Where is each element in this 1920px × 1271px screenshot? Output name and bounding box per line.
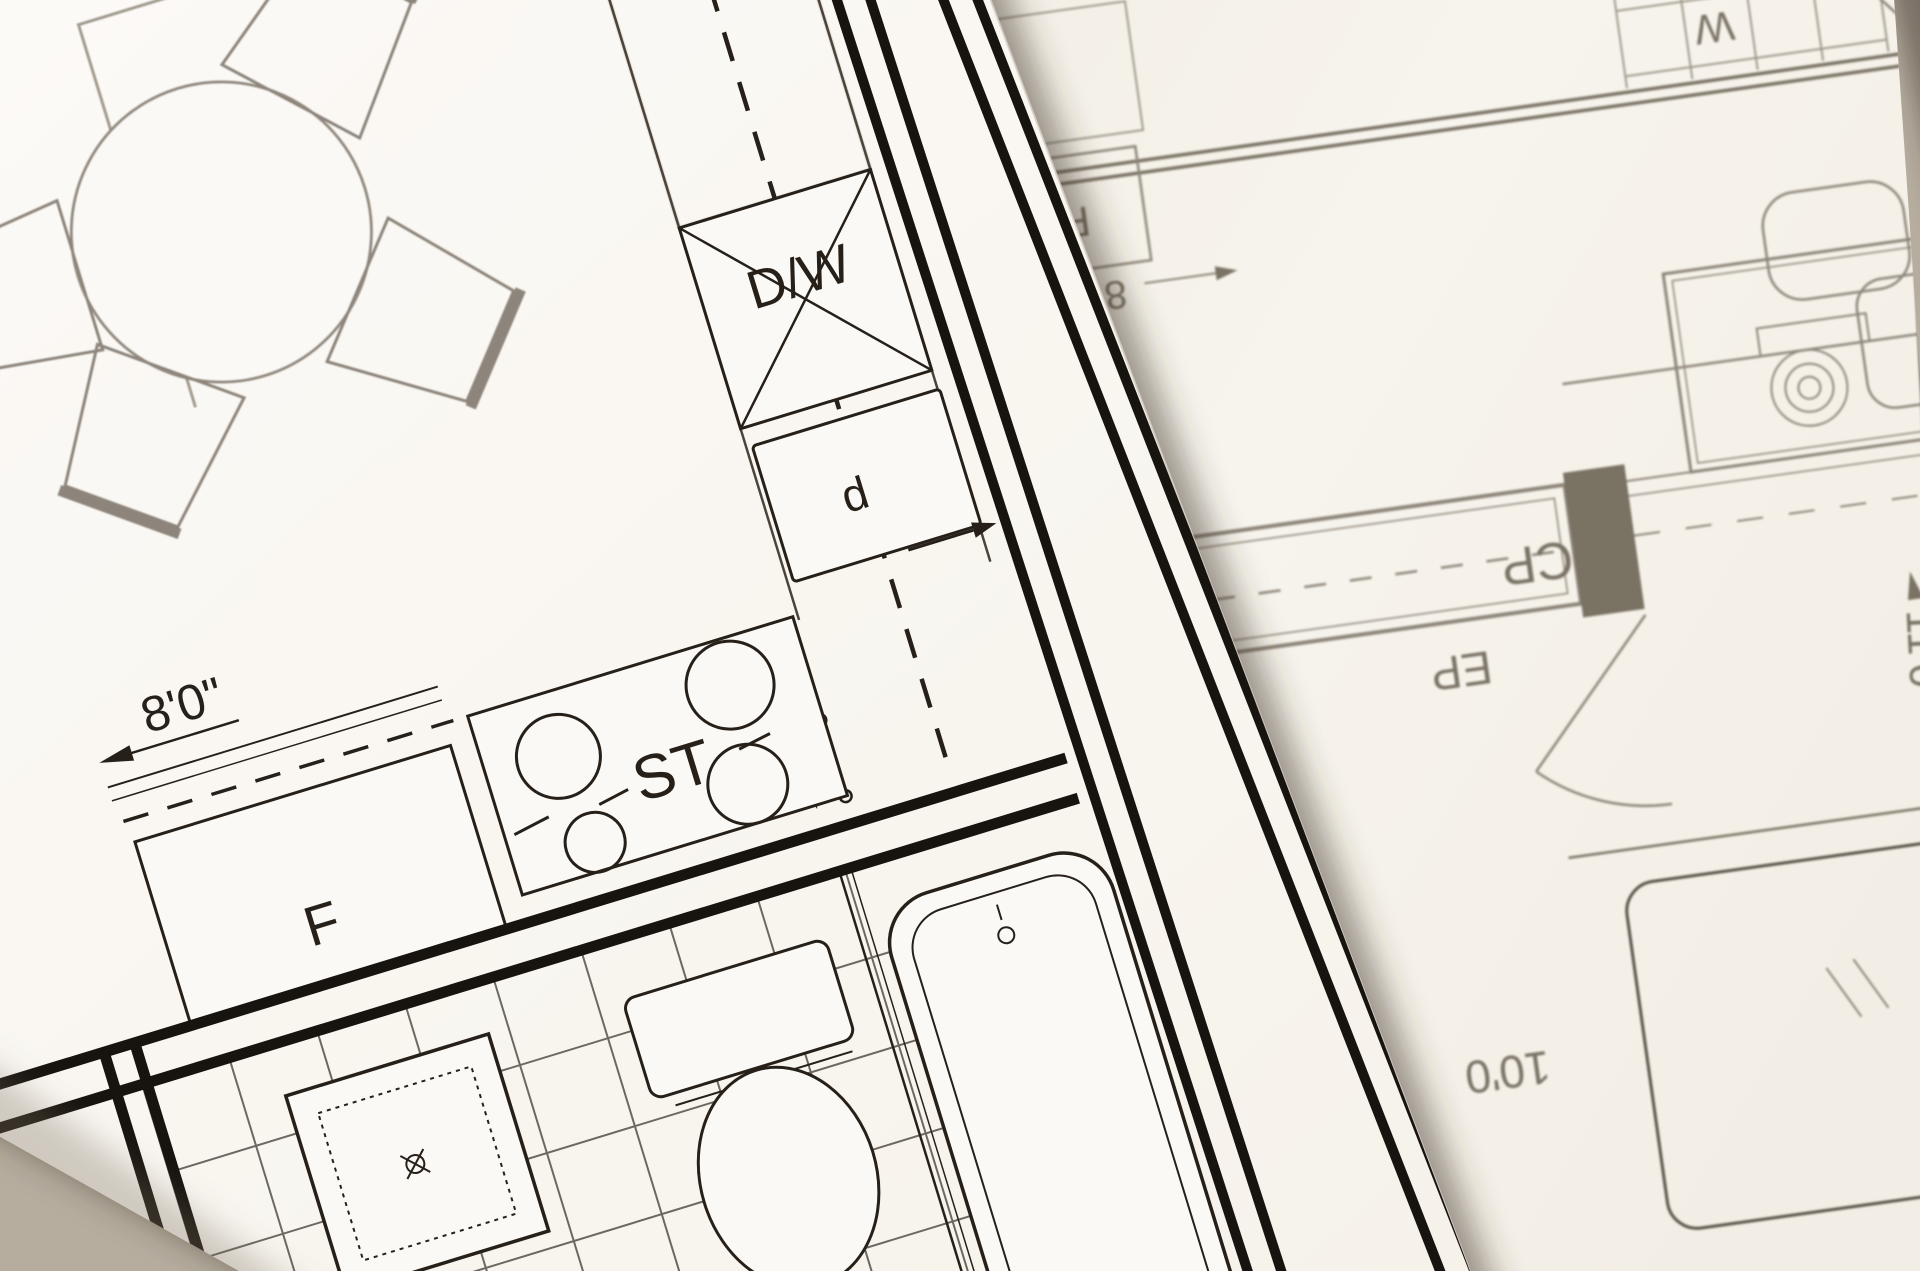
- blueprint-canvas: W D: [0, 0, 1920, 1271]
- blueprint-photo: W D: [0, 0, 1920, 1271]
- closet-label: CP: [1497, 529, 1577, 596]
- panel-label: EP: [1427, 641, 1495, 701]
- washer-label: W: [1691, 2, 1737, 54]
